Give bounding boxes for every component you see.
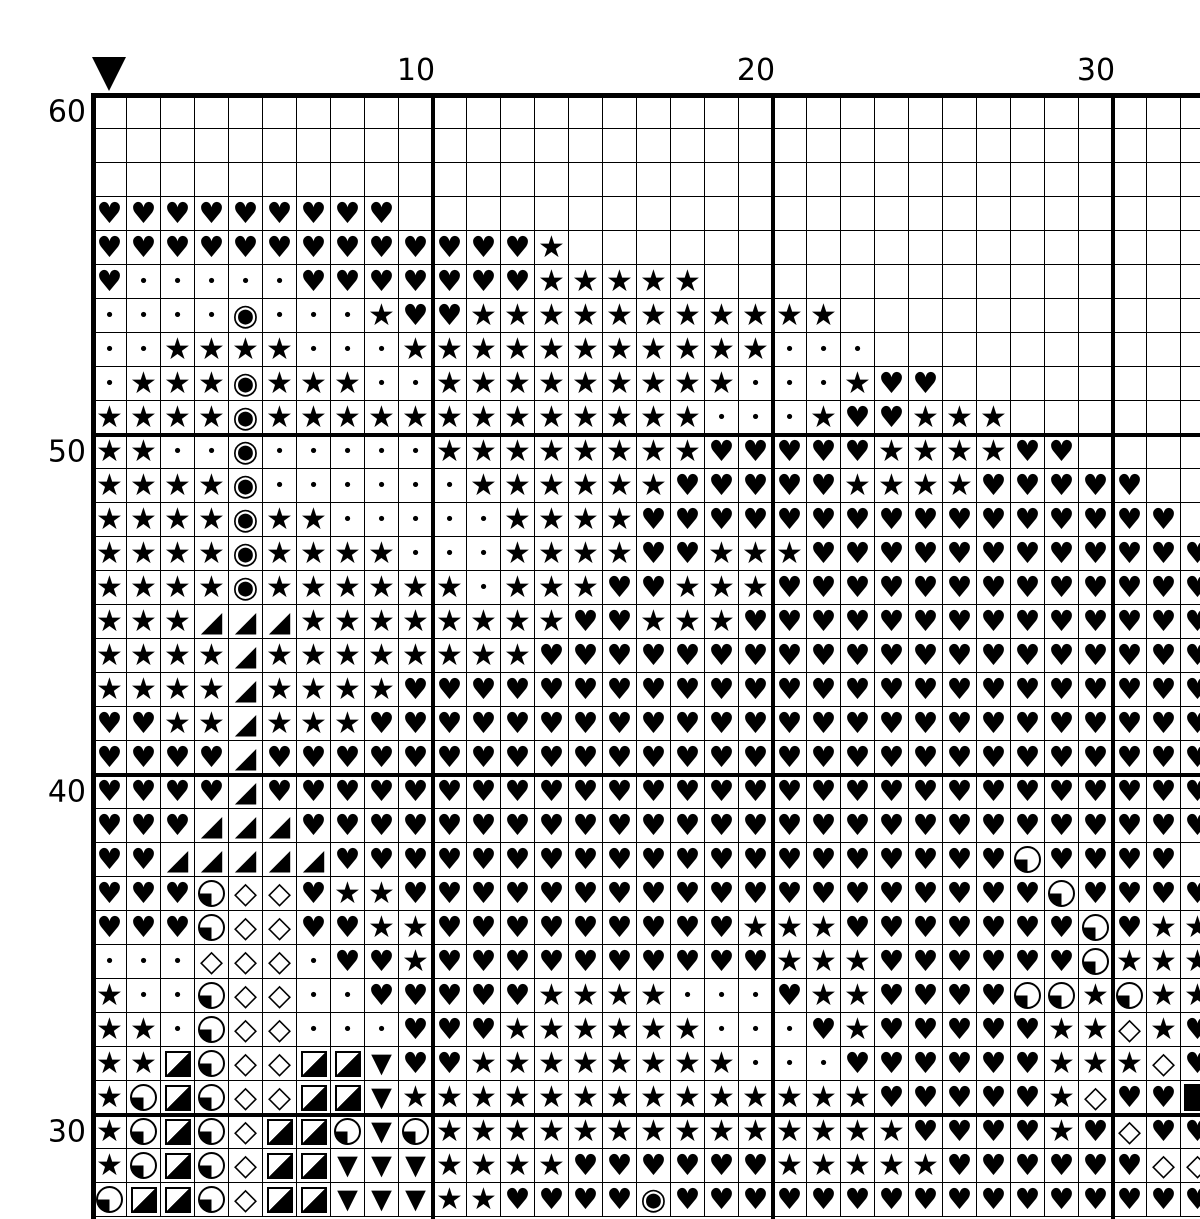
heart-symbol: ♥ [437, 913, 463, 942]
heart-symbol: ♥ [1117, 811, 1143, 840]
grid-cell [535, 163, 569, 197]
grid-cell [127, 1183, 161, 1217]
star-symbol: ★ [198, 369, 225, 399]
heart-symbol: ♥ [1117, 573, 1143, 602]
heart-symbol: ♥ [1185, 607, 1200, 636]
grid-cell: ◢ [263, 843, 297, 877]
star-symbol: ★ [878, 471, 905, 501]
star-symbol: ★ [504, 641, 531, 671]
diamond-symbol: ◇ [234, 1117, 257, 1147]
heart-symbol: ♥ [471, 743, 497, 772]
grid-cell: ★ [637, 333, 671, 367]
grid-cell: ♥ [501, 809, 535, 843]
star-symbol: ★ [606, 267, 633, 297]
heart-symbol: ♥ [913, 539, 939, 568]
heart-symbol: ♥ [845, 845, 871, 874]
heart-symbol: ♥ [675, 709, 701, 738]
grid-cell: ★ [909, 1149, 943, 1183]
grid-cell: ♥ [1011, 639, 1045, 673]
grid-cell [399, 95, 433, 129]
grid-cell: ♥ [1181, 741, 1200, 775]
heart-symbol: ♥ [539, 743, 565, 772]
grid-cell: ★ [535, 1047, 569, 1081]
grid-cell: ♥ [1181, 1183, 1200, 1217]
grid-cell [1011, 129, 1045, 163]
heart-symbol: ♥ [539, 947, 565, 976]
grid-cell: ★ [637, 1081, 671, 1115]
grid-cell: ★ [399, 401, 433, 435]
quarter-circle-symbol [130, 1084, 157, 1111]
grid-cell [909, 333, 943, 367]
grid-cell: ♥ [1079, 809, 1113, 843]
grid-cell: ★ [603, 979, 637, 1013]
star-symbol: ★ [130, 641, 157, 671]
quarter-circle-symbol [1048, 880, 1075, 907]
diamond-symbol: ◇ [234, 1083, 257, 1113]
grid-cell: ★ [1045, 1013, 1079, 1047]
grid-cell [841, 197, 875, 231]
grid-cell: ♥ [1079, 503, 1113, 537]
dot-symbol: • [308, 953, 319, 971]
star-symbol: ★ [844, 1117, 871, 1147]
star-symbol: ★ [130, 471, 157, 501]
star-symbol: ★ [674, 1049, 701, 1079]
grid-cell: ◇ [1181, 1149, 1200, 1183]
heart-symbol: ♥ [471, 709, 497, 738]
grid-cell [773, 231, 807, 265]
heart-symbol: ♥ [1151, 709, 1177, 738]
grid-cell [1181, 129, 1200, 163]
grid-cell: ◇ [1147, 1149, 1181, 1183]
heart-symbol: ♥ [165, 199, 191, 228]
grid-cell: ◉ [637, 1183, 671, 1217]
star-symbol: ★ [504, 335, 531, 365]
star-symbol: ★ [504, 1049, 531, 1079]
grid-cell: ♥ [93, 265, 127, 299]
heart-symbol: ♥ [1049, 675, 1075, 704]
quarter-circle-symbol [198, 1152, 225, 1179]
grid-cell: ★ [705, 605, 739, 639]
grid-cell [1147, 435, 1181, 469]
heart-symbol: ♥ [709, 675, 735, 704]
grid-cell: ★ [637, 469, 671, 503]
grid-cell [569, 163, 603, 197]
grid-cell [841, 231, 875, 265]
heart-symbol: ♥ [437, 777, 463, 806]
dot-symbol: • [274, 477, 285, 495]
star-symbol: ★ [470, 1049, 497, 1079]
grid-cell [297, 163, 331, 197]
grid-cell [1147, 197, 1181, 231]
quarter-circle-symbol [1014, 982, 1041, 1009]
grid-cell: ♥ [705, 877, 739, 911]
heart-symbol: ♥ [131, 879, 157, 908]
heart-symbol: ♥ [573, 913, 599, 942]
grid-cell: ★ [773, 1149, 807, 1183]
heart-symbol: ♥ [709, 709, 735, 738]
heart-symbol: ♥ [539, 879, 565, 908]
grid-cell: ♥ [603, 843, 637, 877]
grid-cell: ♥ [739, 741, 773, 775]
grid-cell: ♥ [569, 877, 603, 911]
grid-cell: ★ [603, 503, 637, 537]
grid-cell [671, 129, 705, 163]
star-symbol: ★ [606, 1083, 633, 1113]
grid-cell: • [365, 367, 399, 401]
grid-cell: ★ [535, 299, 569, 333]
dot-symbol: • [308, 987, 319, 1005]
grid-cell: • [297, 333, 331, 367]
heart-symbol: ♥ [777, 743, 803, 772]
dot-symbol: • [750, 409, 761, 427]
grid-cell: ♥ [773, 979, 807, 1013]
grid-cell: ♥ [467, 843, 501, 877]
diamond-symbol: ◇ [234, 947, 257, 977]
star-symbol: ★ [130, 607, 157, 637]
grid-cell: ♥ [1079, 571, 1113, 605]
heart-symbol: ♥ [743, 879, 769, 908]
grid-cell: ♥ [501, 945, 535, 979]
grid-cell: ★ [535, 1149, 569, 1183]
diamond-symbol: ◇ [234, 1151, 257, 1181]
grid-cell [399, 197, 433, 231]
grid-cell: • [297, 435, 331, 469]
grid-cell [739, 265, 773, 299]
dot-symbol: • [138, 307, 149, 325]
grid-cell: ★ [467, 401, 501, 435]
star-symbol: ★ [198, 335, 225, 365]
dot-symbol: • [342, 341, 353, 359]
grid-cell: ♥ [1147, 1183, 1181, 1217]
heart-symbol: ♥ [777, 675, 803, 704]
grid-cell: ♥ [1045, 605, 1079, 639]
grid-cell: ◇ [1147, 1047, 1181, 1081]
grid-cell [127, 129, 161, 163]
grid-cell: ★ [127, 503, 161, 537]
star-symbol: ★ [436, 335, 463, 365]
grid-cell: ♥ [1147, 537, 1181, 571]
dot-symbol: • [376, 341, 387, 359]
grid-cell [331, 1047, 365, 1081]
heart-symbol: ♥ [879, 743, 905, 772]
grid-cell: ♥ [297, 911, 331, 945]
grid-cell [93, 129, 127, 163]
grid-cell [263, 129, 297, 163]
heart-symbol: ♥ [709, 1151, 735, 1180]
grid-cell [943, 129, 977, 163]
grid-cell: ♥ [365, 231, 399, 265]
star-symbol: ★ [742, 573, 769, 603]
grid-cell [1113, 299, 1147, 333]
grid-cell: ★ [93, 435, 127, 469]
grid-cell: ♥ [909, 775, 943, 809]
grid-cell [705, 265, 739, 299]
grid-cell [1181, 197, 1200, 231]
grid-cell [1113, 435, 1147, 469]
grid-cell: ♥ [93, 231, 127, 265]
half-square-symbol [301, 1119, 327, 1145]
heart-symbol: ♥ [743, 505, 769, 534]
heart-symbol: ♥ [675, 743, 701, 772]
heart-symbol: ♥ [879, 913, 905, 942]
heart-symbol: ♥ [777, 505, 803, 534]
heart-symbol: ♥ [539, 777, 565, 806]
grid-cell: ♥ [467, 979, 501, 1013]
grid-cell: ♥ [535, 707, 569, 741]
star-symbol: ★ [504, 607, 531, 637]
grid-cell: ♥ [1079, 639, 1113, 673]
grid-cell [1181, 401, 1200, 435]
grid-cell: ★ [637, 401, 671, 435]
heart-symbol: ♥ [641, 845, 667, 874]
grid-cell: ♥ [1079, 469, 1113, 503]
star-symbol: ★ [96, 539, 123, 569]
heart-symbol: ♥ [913, 1117, 939, 1146]
grid-cell: ♥ [1079, 1183, 1113, 1217]
star-symbol: ★ [96, 1015, 123, 1045]
heart-symbol: ♥ [267, 199, 293, 228]
grid-cell: ★ [127, 537, 161, 571]
grid-cell: ♥ [467, 673, 501, 707]
star-symbol: ★ [742, 335, 769, 365]
grid-cell: ★ [1147, 1013, 1181, 1047]
dot-symbol: • [274, 273, 285, 291]
grid-cell [569, 231, 603, 265]
grid-cell [943, 197, 977, 231]
heart-symbol: ♥ [845, 709, 871, 738]
grid-cell: ♥ [705, 911, 739, 945]
heart-symbol: ♥ [369, 709, 395, 738]
grid-cell: ★ [93, 1047, 127, 1081]
grid-cell: ♥ [705, 809, 739, 843]
grid-cell: ♥ [671, 775, 705, 809]
heart-symbol: ♥ [1015, 811, 1041, 840]
star-symbol: ★ [810, 913, 837, 943]
grid-cell: ♥ [1045, 1183, 1079, 1217]
heart-symbol: ♥ [675, 845, 701, 874]
grid-cell: ♥ [943, 775, 977, 809]
star-symbol: ★ [572, 1049, 599, 1079]
grid-cell [161, 1183, 195, 1217]
grid-cell: ★ [603, 1115, 637, 1149]
grid-cell [1079, 265, 1113, 299]
grid-cell: ♥ [161, 911, 195, 945]
grid-cell [161, 163, 195, 197]
grid-cell: ♥ [603, 605, 637, 639]
grid-cell: ★ [161, 537, 195, 571]
grid-cell [399, 1115, 433, 1149]
grid-cell [433, 95, 467, 129]
diamond-symbol: ◇ [1152, 1049, 1175, 1079]
diamond-symbol: ◇ [234, 981, 257, 1011]
heart-symbol: ♥ [845, 505, 871, 534]
grid-cell: ♥ [909, 911, 943, 945]
grid-cell: ♥ [433, 299, 467, 333]
grid-cell: ♥ [1079, 673, 1113, 707]
star-symbol: ★ [96, 403, 123, 433]
star-symbol: ★ [300, 709, 327, 739]
grid-cell: ◢ [229, 741, 263, 775]
grid-cell [1181, 231, 1200, 265]
heart-symbol: ♥ [981, 505, 1007, 534]
col-label: 10 [397, 53, 435, 88]
heart-symbol: ♥ [1185, 777, 1200, 806]
heart-symbol: ♥ [471, 811, 497, 840]
grid-cell [1011, 299, 1045, 333]
star-symbol: ★ [606, 539, 633, 569]
grid-cell: ♥ [943, 1115, 977, 1149]
grid-cell: ♥ [467, 1013, 501, 1047]
star-symbol: ★ [1150, 981, 1177, 1011]
heart-symbol: ♥ [743, 675, 769, 704]
grid-cell: ♥ [637, 1149, 671, 1183]
grid-cell: ♥ [841, 571, 875, 605]
half-square-symbol [335, 1085, 361, 1111]
grid-cell [943, 231, 977, 265]
grid-cell: ♥ [977, 605, 1011, 639]
grid-cell: ★ [365, 673, 399, 707]
dot-symbol: • [376, 375, 387, 393]
grid-cell: ♥ [909, 639, 943, 673]
star-symbol: ★ [844, 1015, 871, 1045]
grid-cell: ★ [807, 1081, 841, 1115]
grid-cell [1147, 231, 1181, 265]
grid-cell: ★ [569, 1013, 603, 1047]
heart-symbol: ♥ [1117, 607, 1143, 636]
cross-stitch-chart: { "colors": { "ink": "#000000", "backgro… [0, 0, 1200, 1200]
star-symbol: ★ [1150, 947, 1177, 977]
heart-symbol: ♥ [1117, 913, 1143, 942]
grid-cell: ♥ [501, 911, 535, 945]
grid-cell [875, 95, 909, 129]
grid-cell: ♥ [671, 469, 705, 503]
heart-symbol: ♥ [981, 675, 1007, 704]
heart-symbol: ♥ [845, 403, 871, 432]
dot-symbol: • [478, 511, 489, 529]
heart-symbol: ♥ [1083, 471, 1109, 500]
star-symbol: ★ [1048, 1015, 1075, 1045]
grid-cell: • [399, 537, 433, 571]
heart-symbol: ♥ [879, 539, 905, 568]
grid-cell: ♥ [807, 639, 841, 673]
grid-cell [943, 265, 977, 299]
grid-cell: ♥ [807, 1013, 841, 1047]
grid-cell [1181, 503, 1200, 537]
grid-cell [195, 163, 229, 197]
grid-cell: ♥ [909, 367, 943, 401]
grid-cell: ★ [807, 401, 841, 435]
grid-cell: ♥ [501, 775, 535, 809]
heart-symbol: ♥ [879, 777, 905, 806]
heart-symbol: ♥ [845, 539, 871, 568]
heart-symbol: ♥ [879, 1049, 905, 1078]
grid-cell: ★ [93, 537, 127, 571]
grid-cell: ♥ [875, 877, 909, 911]
grid-cell: ★ [943, 435, 977, 469]
star-symbol: ★ [470, 437, 497, 467]
grid-cell: ★ [909, 469, 943, 503]
grid-cell: ★ [671, 1013, 705, 1047]
star-symbol: ★ [538, 471, 565, 501]
star-symbol: ★ [572, 1083, 599, 1113]
grid-cell: ★ [195, 537, 229, 571]
grid-cell: ★ [603, 1047, 637, 1081]
heart-symbol: ♥ [913, 607, 939, 636]
star-symbol: ★ [470, 403, 497, 433]
heart-symbol: ♥ [505, 709, 531, 738]
grid-cell: ♥ [875, 1081, 909, 1115]
grid-cell [875, 265, 909, 299]
grid-cell [1045, 367, 1079, 401]
dot-symbol: • [342, 511, 353, 529]
grid-cell [1079, 401, 1113, 435]
grid-cell: ★ [535, 265, 569, 299]
grid-cell: ★ [535, 401, 569, 435]
heart-symbol: ♥ [641, 947, 667, 976]
grid-cell: ★ [943, 401, 977, 435]
grid-cell: ♥ [1113, 1183, 1147, 1217]
heart-symbol: ♥ [335, 267, 361, 296]
grid-cell: ♥ [569, 707, 603, 741]
grid-cell: ★ [773, 945, 807, 979]
grid-cell: ♥ [365, 775, 399, 809]
grid-cell: ★ [739, 911, 773, 945]
grid-cell: ♥ [1011, 469, 1045, 503]
grid-cell: ♥ [467, 809, 501, 843]
grid-cell: ♥ [875, 401, 909, 435]
heart-symbol: ♥ [437, 947, 463, 976]
grid-cell: ♥ [807, 741, 841, 775]
heart-symbol: ♥ [1049, 437, 1075, 466]
heart-symbol: ♥ [913, 505, 939, 534]
grid-cell: ★ [535, 435, 569, 469]
heart-symbol: ♥ [97, 199, 123, 228]
grid-cell: ◇ [229, 1081, 263, 1115]
grid-cell: ♥ [93, 809, 127, 843]
heart-symbol: ♥ [981, 573, 1007, 602]
grid-cell: ♥ [705, 469, 739, 503]
heart-symbol: ♥ [641, 641, 667, 670]
grid-cell: • [127, 979, 161, 1013]
grid-cell: ♥ [739, 843, 773, 877]
grid-cell: ◇ [263, 877, 297, 911]
dot-symbol: • [206, 273, 217, 291]
star-symbol: ★ [538, 301, 565, 331]
grid-cell: ♥ [1147, 741, 1181, 775]
grid-cell: ♥ [399, 877, 433, 911]
grid-cell [569, 129, 603, 163]
grid-cell: ♥ [1011, 877, 1045, 911]
grid-cell [263, 163, 297, 197]
corner-triangle-symbol: ◢ [201, 812, 223, 840]
heart-symbol: ♥ [913, 879, 939, 908]
dot-symbol: • [104, 953, 115, 971]
grid-cell: ♥ [433, 741, 467, 775]
heart-symbol: ♥ [947, 607, 973, 636]
grid-cell: ◢ [195, 843, 229, 877]
heart-symbol: ♥ [573, 777, 599, 806]
dot-symbol: • [240, 273, 251, 291]
heart-symbol: ♥ [947, 1049, 973, 1078]
star-symbol: ★ [572, 267, 599, 297]
heart-symbol: ♥ [131, 199, 157, 228]
star-symbol: ★ [368, 301, 395, 331]
grid-cell: ♥ [943, 1149, 977, 1183]
grid-cell: ♥ [433, 877, 467, 911]
grid-cell: ♥ [331, 945, 365, 979]
grid-cell [1045, 979, 1079, 1013]
grid-cell: ♥ [1045, 435, 1079, 469]
